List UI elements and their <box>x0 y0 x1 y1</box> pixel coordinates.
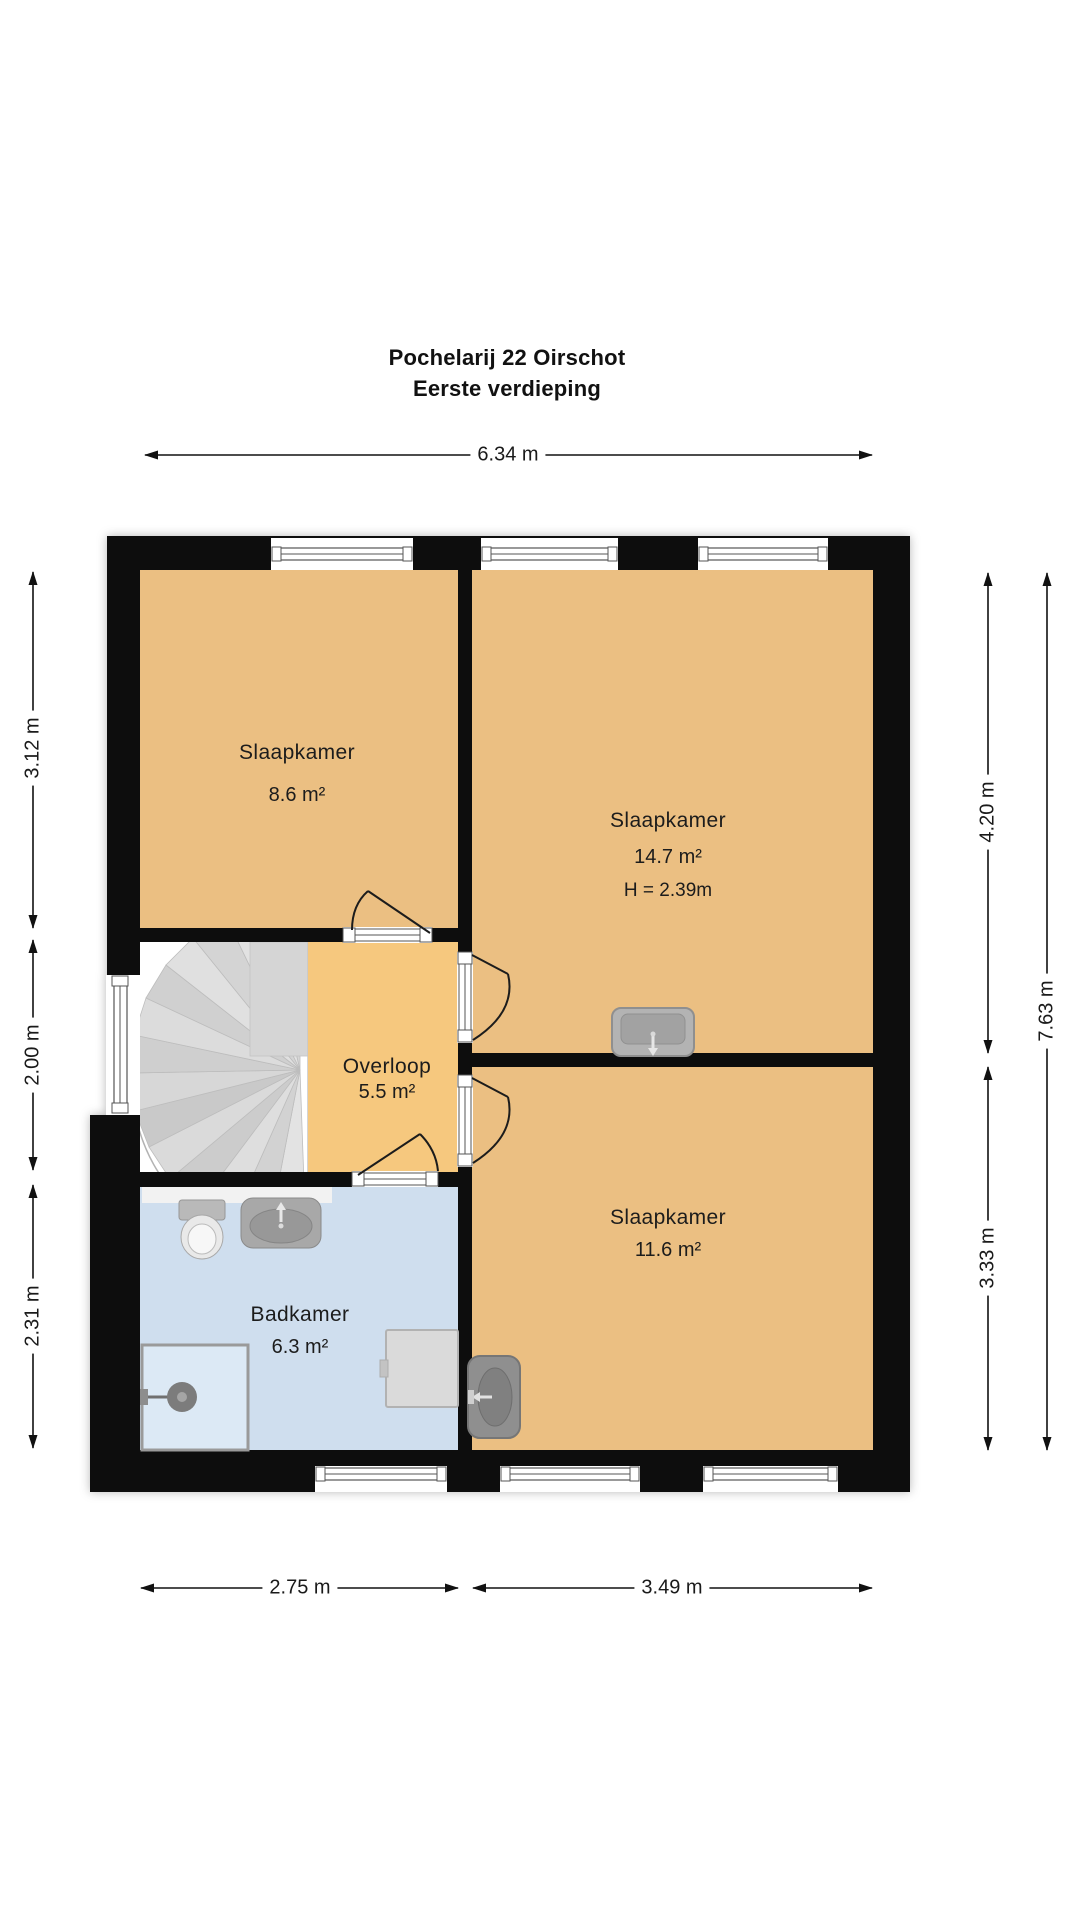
dim-label-bottom-right: 3.49 m <box>634 1576 709 1601</box>
shower-icon <box>140 1345 248 1450</box>
room-area: 14.7 m² <box>610 846 726 869</box>
dim-label-bottom-left: 2.75 m <box>262 1576 337 1601</box>
window <box>703 1466 838 1492</box>
room-name: Slaapkamer <box>610 809 726 833</box>
wall-overloop-badkamer <box>438 1172 458 1187</box>
wall-right <box>873 536 910 1492</box>
wall-left-upper <box>107 536 140 975</box>
floorplan-drawing <box>0 0 1080 1920</box>
window <box>698 538 828 570</box>
dim-label-right-bottom: 3.33 m <box>976 1220 1001 1295</box>
window <box>481 538 618 570</box>
washing-machine-icon <box>380 1330 458 1407</box>
room-label-slaapkamer-groot: Slaapkamer 14.7 m² H = 2.39m <box>610 809 726 902</box>
room-area: 8.6 m² <box>239 784 355 807</box>
dim-label-left-middle: 2.00 m <box>21 1017 46 1092</box>
dim-label-right-top: 4.20 m <box>976 774 1001 849</box>
door-sill <box>457 1075 473 1167</box>
wall-interior-vertical <box>458 570 472 952</box>
wall-interior-vertical <box>458 1043 472 1075</box>
room-ceiling-height: H = 2.39m <box>610 880 726 902</box>
plan-body <box>90 536 910 1492</box>
window <box>271 538 413 570</box>
sink-icon <box>468 1356 520 1438</box>
wall-left-lower <box>90 1115 140 1460</box>
room-label-slaapkamer-links: Slaapkamer 8.6 m² <box>239 741 355 807</box>
room-area: 5.5 m² <box>343 1081 431 1104</box>
toilet-icon <box>179 1200 225 1259</box>
window <box>500 1466 640 1492</box>
dim-label-left-top: 3.12 m <box>21 710 46 785</box>
door-sill <box>457 952 473 1043</box>
room-name: Slaapkamer <box>610 1206 726 1230</box>
sink-icon <box>612 1008 694 1056</box>
window <box>106 975 140 1115</box>
room-name: Slaapkamer <box>239 741 355 765</box>
dim-label-right-full: 7.63 m <box>1035 973 1060 1048</box>
plan-title: Pochelarij 22 Oirschot <box>389 345 626 371</box>
plan-subtitle: Eerste verdieping <box>413 376 601 402</box>
room-name: Badkamer <box>251 1303 350 1327</box>
room-name: Overloop <box>343 1055 431 1079</box>
dim-label-top: 6.34 m <box>470 443 545 468</box>
washbasin-icon <box>241 1198 321 1248</box>
wall-bedroom-overloop <box>432 928 458 942</box>
door-sill <box>343 927 432 943</box>
room-label-overloop: Overloop 5.5 m² <box>343 1055 431 1104</box>
wall-overloop-badkamer <box>140 1172 352 1187</box>
room-area: 6.3 m² <box>251 1336 350 1359</box>
wall-bedroom-overloop <box>140 928 343 942</box>
floorplan-page: Pochelarij 22 Oirschot Eerste verdieping… <box>0 0 1080 1920</box>
room-area: 11.6 m² <box>610 1239 726 1262</box>
room-label-slaapkamer-onder: Slaapkamer 11.6 m² <box>610 1206 726 1262</box>
window <box>315 1466 447 1492</box>
door-sill <box>352 1171 438 1187</box>
dim-label-left-bottom: 2.31 m <box>21 1278 46 1353</box>
room-label-badkamer: Badkamer 6.3 m² <box>251 1303 350 1359</box>
